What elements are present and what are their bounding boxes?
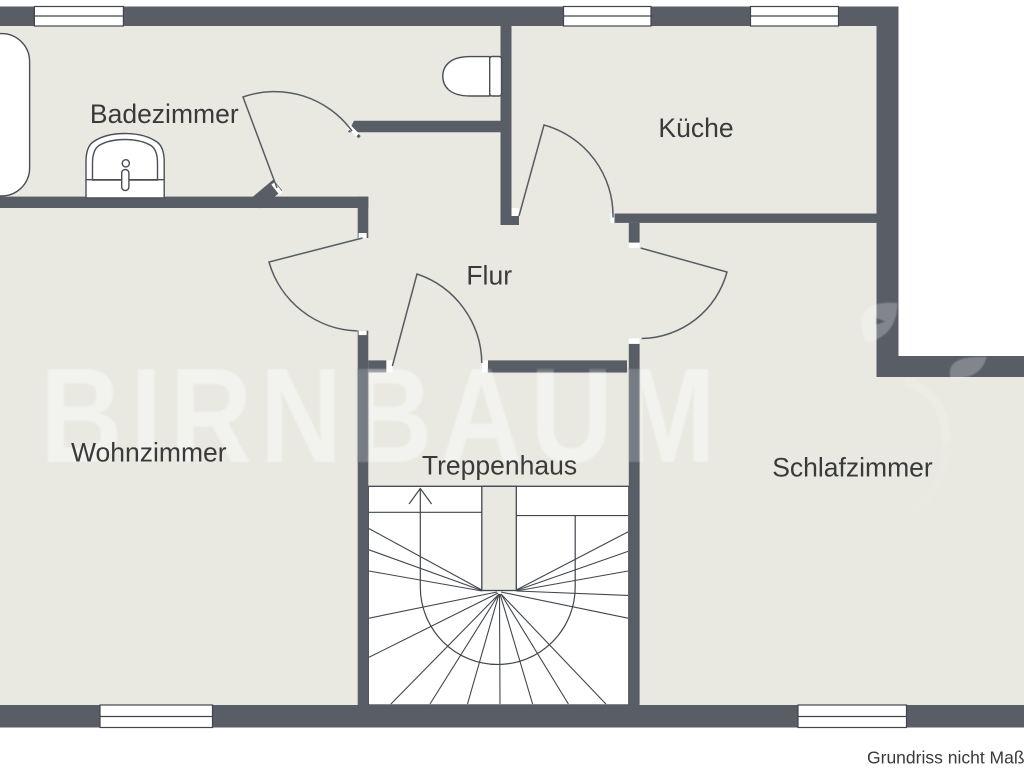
svg-text:Treppenhaus: Treppenhaus bbox=[422, 451, 577, 481]
svg-text:Schlafzimmer: Schlafzimmer bbox=[772, 453, 933, 483]
svg-text:Badezimmer: Badezimmer bbox=[90, 99, 239, 129]
svg-text:Grundriss nicht Maßstabsgetreu: Grundriss nicht Maßstabsgetreu bbox=[867, 748, 1024, 768]
svg-text:Wohnzimmer: Wohnzimmer bbox=[71, 438, 227, 468]
svg-text:BIRNBAUM: BIRNBAUM bbox=[40, 340, 723, 491]
svg-text:Flur: Flur bbox=[466, 261, 512, 291]
svg-text:Küche: Küche bbox=[658, 113, 733, 143]
